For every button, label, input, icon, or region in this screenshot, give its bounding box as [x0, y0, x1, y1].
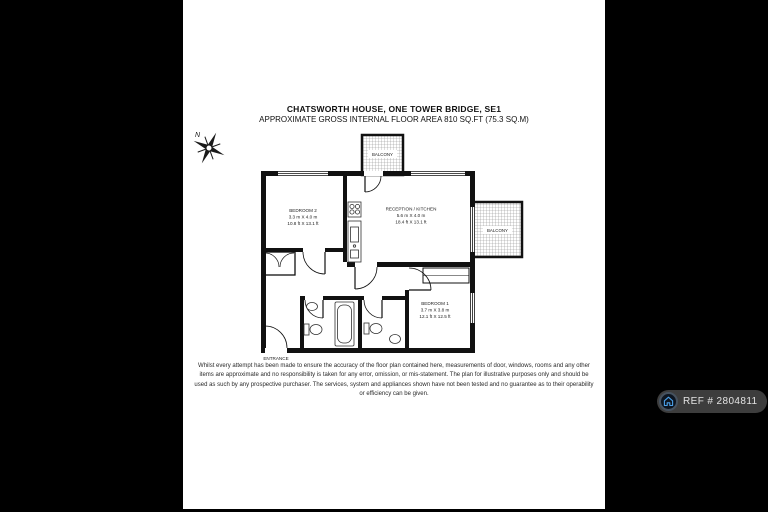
closet [264, 252, 295, 275]
bedroom1-metric: 3.7 m X 3.8 m [421, 308, 450, 313]
house-icon [659, 392, 678, 411]
bedroom1-imperial: 12.1 ft X 12.5 ft [419, 314, 451, 319]
entrance-label: ENTRANCE [263, 356, 288, 361]
reception-imperial: 18.4 ft X 13.1 ft [395, 220, 427, 225]
reception-metric: 5.6 m X 4.0 m [397, 213, 426, 218]
bedroom1-name: BEDROOM 1 [421, 301, 449, 306]
bedroom2-imperial: 10.8 ft X 13.1 ft [287, 221, 319, 226]
disclaimer-text: Whilst every attempt has been made to en… [194, 362, 594, 399]
balcony-top-label: BALCONY [372, 152, 393, 157]
bathroom-fixtures [304, 302, 401, 346]
floorplan-drawing: N BALCONY BALCONY [183, 0, 605, 512]
bedroom2-name: BEDROOM 2 [289, 208, 317, 213]
wardrobe [423, 268, 469, 283]
floorplan-page: CHATSWORTH HOUSE, ONE TOWER BRIDGE, SE1 … [183, 0, 605, 509]
balcony-right: BALCONY [473, 202, 522, 257]
balcony-right-label: BALCONY [487, 228, 508, 233]
ref-number: REF # 2804811 [683, 396, 758, 407]
balcony-top: BALCONY [362, 135, 403, 175]
reception-name: RECEPTION / KITCHEN [386, 207, 437, 212]
bedroom2-metric: 3.3 m X 4.0 m [289, 215, 318, 220]
ref-badge: REF # 2804811 [657, 390, 767, 413]
kitchen-fixtures [348, 202, 361, 262]
screenshot-root: { "header": { "title": "CHATSWORTH HOUSE… [0, 0, 768, 512]
compass-icon: N [183, 117, 240, 179]
compass-north-label: N [195, 132, 201, 139]
